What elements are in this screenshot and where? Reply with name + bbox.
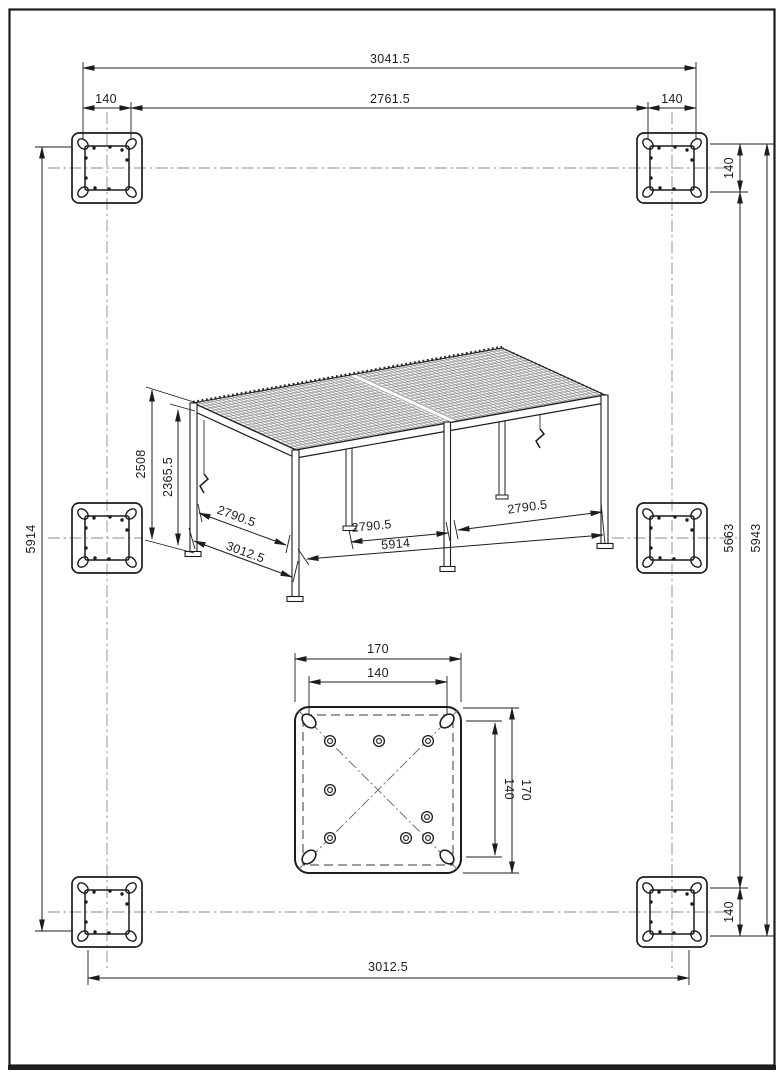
dim-clear-height: 2365.5: [161, 457, 175, 497]
dim-length-left: 5914: [24, 524, 38, 553]
dim-plate-height: 170: [519, 779, 533, 801]
dim-inner-length-right: 5663: [722, 523, 736, 552]
drawing-canvas: 3041.5 140 2761.5 140 140 5663 140 5943 …: [0, 0, 784, 1080]
dim-depth: 3012.5: [224, 539, 266, 566]
pergola-isometric-view: 2508 2365.5 2790.5 3012.5 2790.5 2790.5 …: [134, 347, 613, 602]
dim-clear-span-side-right: 2790.5: [507, 497, 549, 516]
dim-plate-width: 170: [367, 642, 389, 656]
dim-anchor-spacing-right-top: 140: [722, 157, 736, 179]
dim-anchor-spacing-top-right: 140: [661, 92, 683, 106]
dim-clear-span-side-mid: 2790.5: [351, 517, 392, 535]
dim-clear-span-front: 2790.5: [215, 503, 257, 530]
dim-anchor-spacing-top-left: 140: [95, 92, 117, 106]
dim-plate-hole-spacing-v: 140: [502, 778, 516, 800]
dim-overall-width-top: 3041.5: [370, 52, 410, 66]
top-dimensions: 3041.5 140 2761.5 140: [83, 52, 696, 140]
technical-drawing: 3041.5 140 2761.5 140 140 5663 140 5943 …: [0, 0, 784, 1080]
bottom-dimension: 3012.5: [88, 950, 689, 985]
dim-length: 5914: [381, 536, 411, 552]
base-plate-detail: 170 140 140 170: [295, 642, 533, 873]
dim-anchor-spacing-right-bottom: 140: [722, 901, 736, 923]
dim-plate-hole-spacing-h: 140: [367, 666, 389, 680]
left-dimension: 5914: [24, 147, 72, 931]
dim-post-span-bottom: 3012.5: [368, 960, 408, 974]
dim-inner-width-top: 2761.5: [370, 92, 410, 106]
dim-overall-height: 2508: [134, 449, 148, 478]
right-dimensions: 140 5663 140 5943: [710, 144, 775, 936]
dim-overall-length-right: 5943: [749, 523, 763, 552]
